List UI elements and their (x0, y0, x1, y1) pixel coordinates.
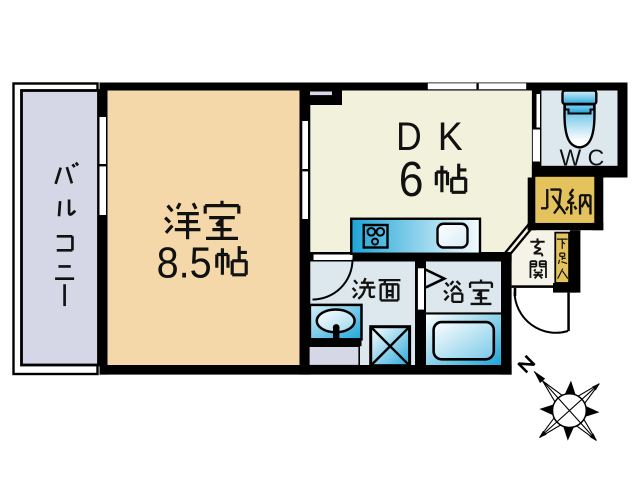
svg-text:8.5: 8.5 (157, 237, 212, 286)
svg-text:6: 6 (399, 152, 424, 206)
svg-text:K: K (438, 115, 463, 159)
svg-text:W C: W C (560, 145, 605, 171)
